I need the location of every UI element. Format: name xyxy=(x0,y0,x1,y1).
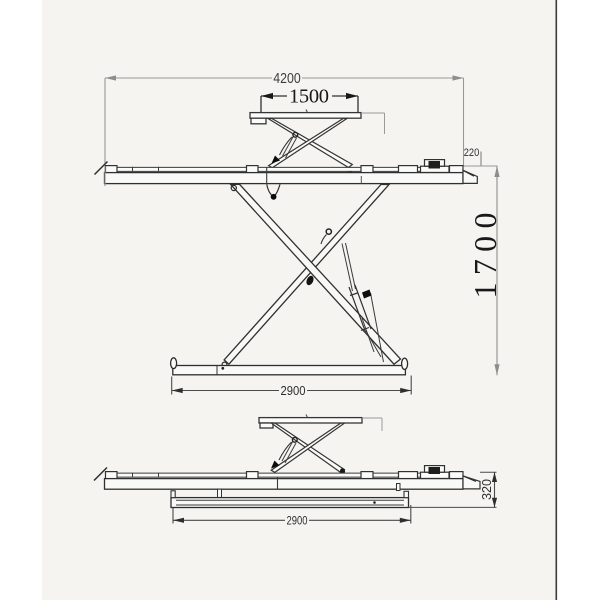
svg-text:320: 320 xyxy=(479,479,494,500)
svg-text:2900: 2900 xyxy=(287,516,308,528)
svg-text:2900: 2900 xyxy=(281,383,306,398)
svg-text:220: 220 xyxy=(464,147,480,159)
svg-text:1500: 1500 xyxy=(289,86,329,108)
